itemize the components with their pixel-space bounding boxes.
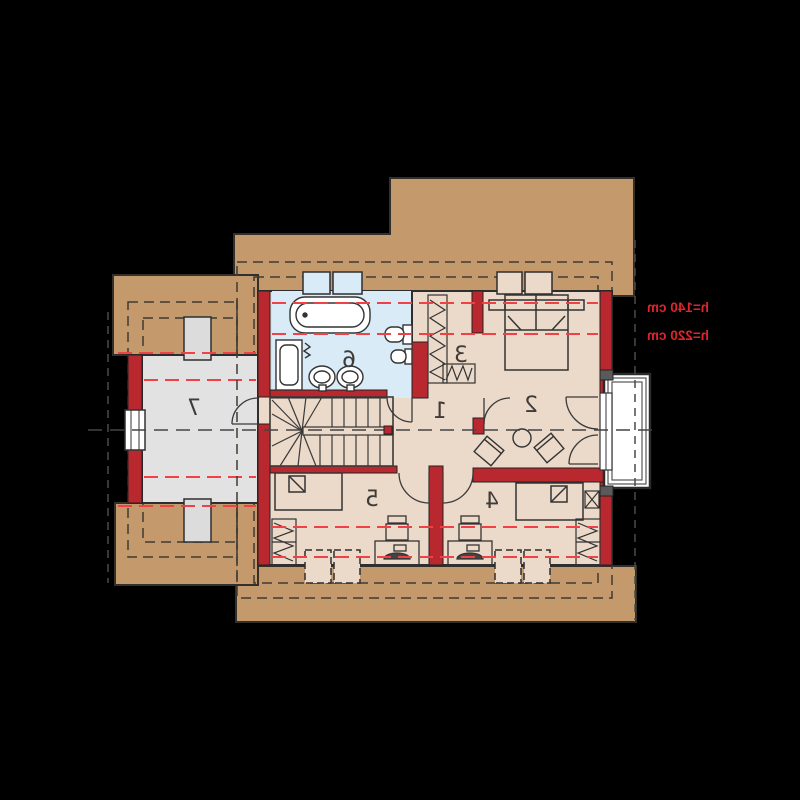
room-label-6: 6 <box>342 348 356 373</box>
bedroom4-dormer-window <box>524 550 550 583</box>
shower-icon <box>276 340 302 390</box>
wall-left-main-upper <box>258 291 270 397</box>
wall-left-wing-upper <box>128 355 142 411</box>
room-label-5: 5 <box>365 487 379 512</box>
wall-bedroom2-bedroom4 <box>473 468 612 482</box>
section-marker <box>384 426 392 434</box>
bedroom4-dormer-window <box>495 550 521 583</box>
balcony-door <box>600 393 612 470</box>
room-label-7: 7 <box>187 396 201 421</box>
bedroom2-dormer-window <box>497 272 522 294</box>
roof-plane-main-bottom <box>236 566 636 622</box>
floor-room7 <box>142 355 258 503</box>
wall-bedroom5-bedroom4-divider <box>429 466 443 565</box>
wall-bedroom5-top <box>270 466 397 473</box>
room-label-1: 1 <box>433 399 447 424</box>
balcony-pier <box>600 370 613 380</box>
bathroom-dormer-window <box>333 272 362 294</box>
room-label-2: 2 <box>524 393 538 418</box>
wall-left-wing-lower <box>128 449 142 503</box>
bedroom5-dormer-window <box>305 550 331 583</box>
room-label-3: 3 <box>454 343 468 368</box>
room-label-4: 4 <box>485 489 499 514</box>
wall-hall-stub <box>473 418 484 434</box>
floor-plan-drawing: 1 2 3 4 5 6 7 h=140 cm h=220 cm <box>0 0 800 800</box>
bidet-icon <box>391 349 412 364</box>
stairs-handrail <box>303 427 393 435</box>
wall-wardrobe-bedroom2 <box>472 291 483 333</box>
floor-plan-page: 1 2 3 4 5 6 7 h=140 cm h=220 cm <box>0 0 800 800</box>
height-annotation-140: h=140 cm <box>647 300 709 315</box>
bathroom-dormer-window <box>303 272 330 294</box>
wall-bathroom-wardrobe-divider <box>412 342 428 398</box>
balcony-pier <box>600 486 613 496</box>
height-annotation-220: h=220 cm <box>647 328 709 343</box>
wall-left-main-lower <box>258 424 270 565</box>
bedroom2-dormer-window <box>525 272 552 294</box>
bedroom5-dormer-window <box>334 550 360 583</box>
